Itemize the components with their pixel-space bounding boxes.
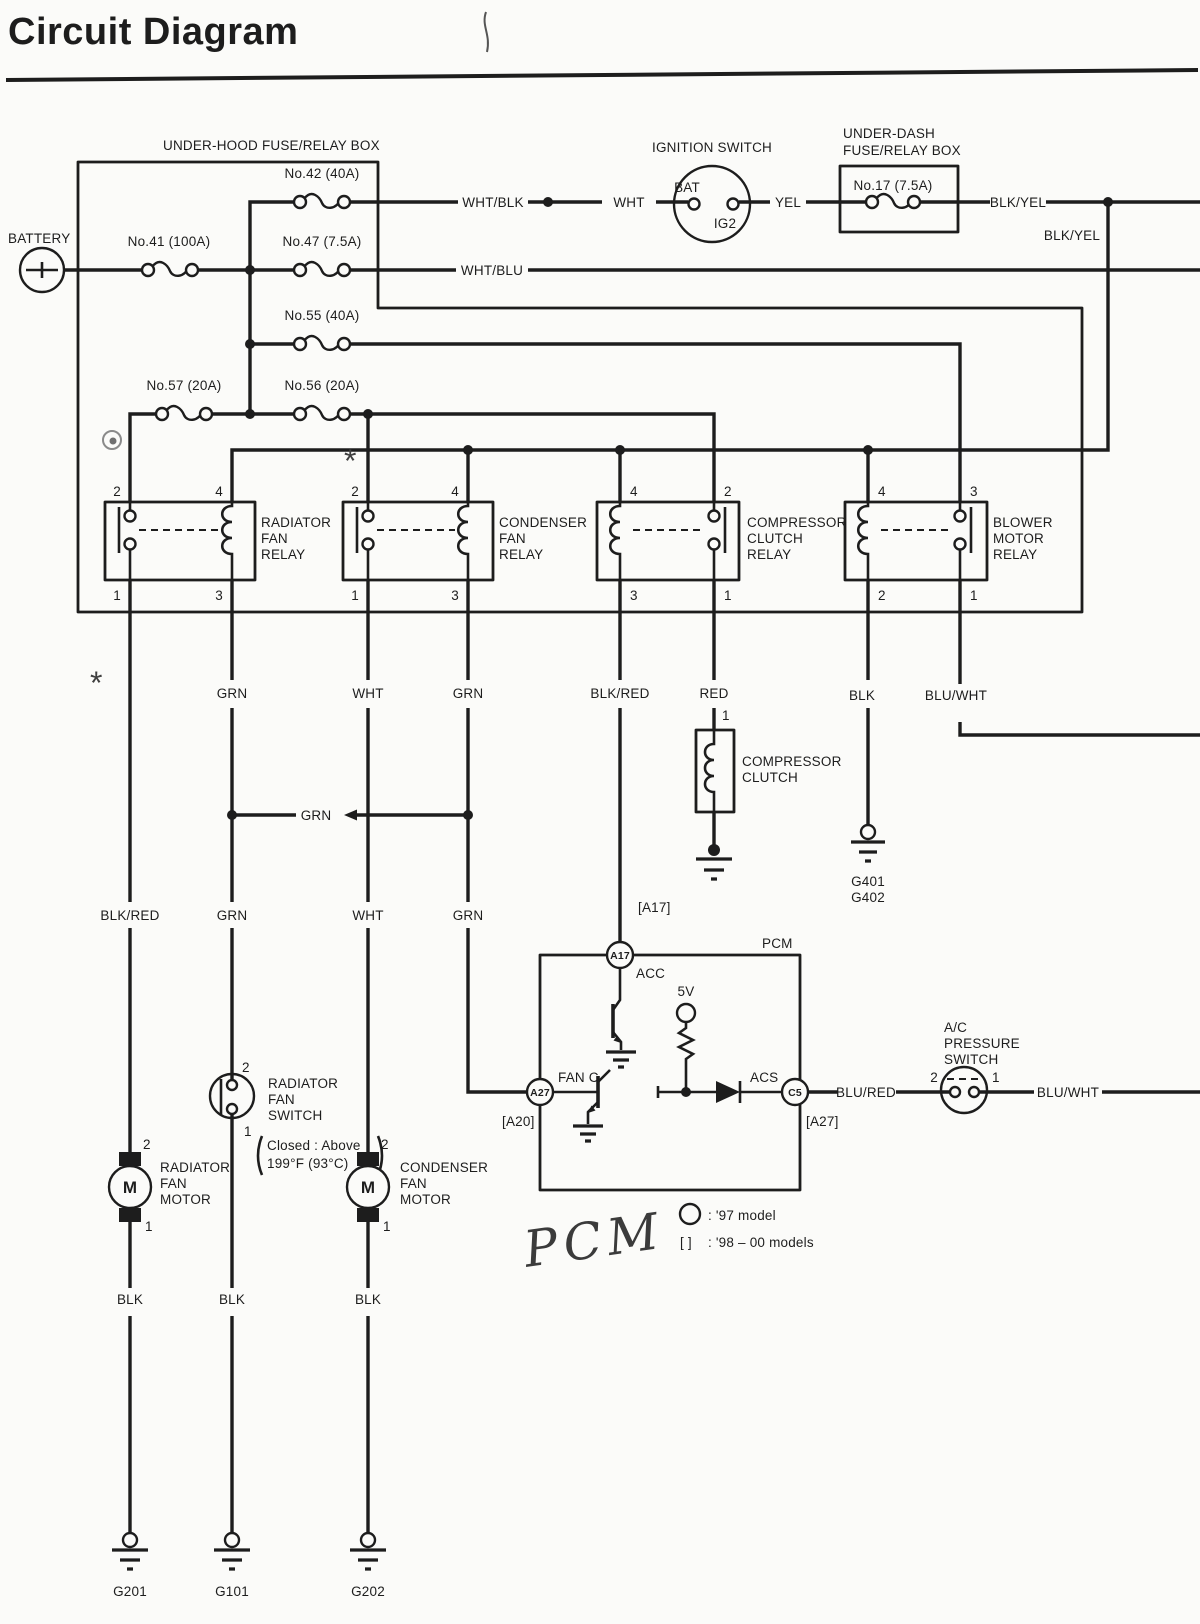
- note-paren-left: [258, 1136, 262, 1175]
- ground-terminal: [361, 1533, 375, 1547]
- relay-pin-label: 1: [351, 588, 359, 603]
- pcm-acc-label: ACC: [636, 966, 665, 981]
- wire-label-wht-blu: WHT/BLU: [461, 263, 523, 278]
- fuse-56-terminal: [294, 408, 306, 420]
- relay-pin-label: 4: [630, 484, 638, 499]
- pcm-module: PCM A17 [A17] ACC 5V A27 [A20] FAN C A: [502, 900, 839, 1279]
- motor-name: MOTOR: [160, 1192, 211, 1207]
- pcm-5v-label: 5V: [678, 984, 695, 999]
- motor-brush-bottom: [357, 1208, 379, 1222]
- compressor-clutch-name: CLUTCH: [742, 770, 798, 785]
- compressor-clutch: 1 COMPRESSOR CLUTCH: [696, 708, 842, 879]
- pcm-connector-c5-text: C5: [788, 1087, 802, 1099]
- relay-pin-label: 4: [215, 484, 223, 499]
- legend-97-note: : '97 model: [708, 1208, 776, 1223]
- ground-icon: [606, 1052, 636, 1067]
- ground-terminal: [861, 825, 875, 839]
- wire-label-blk-yel-drop: BLK/YEL: [1044, 228, 1100, 243]
- junction-no55: [245, 339, 255, 349]
- ground-terminal: [123, 1533, 137, 1547]
- fuse-42-label: No.42 (40A): [285, 166, 360, 181]
- blower-motor-relay: 4 3 2 1 BLOWER MOTOR RELAY: [845, 484, 1053, 603]
- relay-pin-label: 2: [113, 484, 121, 499]
- under-hood-fuse-relay-box: UNDER-HOOD FUSE/RELAY BOX: [78, 138, 1082, 612]
- ground-g202: G202: [350, 1533, 386, 1599]
- column-labels-row2: BLK/RED GRN WHT GRN: [100, 908, 483, 923]
- junction-busa: [245, 409, 255, 419]
- ground-icon: [214, 1550, 250, 1569]
- under-dash-fuse-relay-box: UNDER-DASH FUSE/RELAY BOX No.17 (7.5A): [840, 126, 961, 232]
- pcm-c5-bracket-label: [A27]: [806, 1114, 839, 1129]
- scan-artifact-blob-dot: [110, 438, 117, 445]
- ground-terminal: [225, 1533, 239, 1547]
- ground-icon: [573, 1126, 603, 1141]
- ignition-ig2-contact: [728, 199, 739, 210]
- fuse-42-element: [304, 194, 341, 208]
- relay-pin-label: 3: [970, 484, 978, 499]
- wire-label-blk: BLK: [219, 1292, 245, 1307]
- relay-switch-contact: [709, 539, 720, 550]
- motor-pin-bottom: 1: [383, 1219, 391, 1234]
- wire-bluwht-right: [960, 580, 1200, 735]
- ground-icon: [851, 842, 885, 861]
- radiator-fan-relay: 2 4 1 3 RADIATOR FAN RELAY: [105, 484, 331, 603]
- page-title: Circuit Diagram: [8, 11, 298, 53]
- fuse-47-element: [304, 262, 341, 276]
- relay-name: RADIATOR: [261, 515, 331, 530]
- fan-switch-pin-bottom: 1: [244, 1124, 252, 1139]
- fan-switch-note-2: 199°F (93°C): [267, 1156, 348, 1171]
- title-underline: [6, 70, 1198, 80]
- relay-name: CONDENSER: [499, 515, 587, 530]
- legend-98-note: : '98 – 00 models: [708, 1235, 814, 1250]
- radiator-fan-switch: 2 1 RADIATOR FAN SWITCH Closed : Above 1…: [210, 1060, 382, 1175]
- fan-switch-name: SWITCH: [268, 1108, 322, 1123]
- motor-name: RADIATOR: [160, 1160, 230, 1175]
- fuse-55-terminal: [294, 338, 306, 350]
- transistor-emitter: [588, 1102, 598, 1124]
- junction-grn-jumper: [227, 810, 237, 820]
- fuse-47-terminal: [294, 264, 306, 276]
- fuse-56-label: No.56 (20A): [285, 378, 360, 393]
- relay-name: FAN: [261, 531, 288, 546]
- top-wire-labels: WHT/BLK WHT YEL BLK/YEL BLK/YEL WHT/BLU: [461, 195, 1100, 278]
- wire-label-grn: GRN: [217, 908, 248, 923]
- motor-m-letter: M: [361, 1178, 375, 1197]
- wire-no57-to-radiator: [130, 414, 156, 502]
- junction-no41: [245, 265, 255, 275]
- relay-name: MOTOR: [993, 531, 1044, 546]
- pcm-acs-label: ACS: [750, 1070, 778, 1085]
- arrow-left-icon: [344, 810, 357, 821]
- motor-pin-top: 2: [381, 1137, 389, 1152]
- splice-dot: [543, 197, 553, 207]
- ground-icon: [696, 859, 732, 879]
- fuse-41-element: [152, 262, 189, 276]
- ground-label-g401: G401: [851, 874, 885, 889]
- pressure-switch-name: PRESSURE: [944, 1036, 1020, 1051]
- relay-name: RELAY: [499, 547, 543, 562]
- relay-name: RELAY: [261, 547, 305, 562]
- pressure-switch-contact: [950, 1087, 960, 1097]
- junction-grn-jumper: [463, 810, 473, 820]
- scan-artifact-squiggle: [485, 12, 488, 52]
- fuse-42-terminal: [338, 196, 350, 208]
- fuse-41-label: No.41 (100A): [128, 234, 211, 249]
- ac-pressure-switch-icon: [941, 1067, 987, 1113]
- wire-label-wht: WHT: [613, 195, 644, 210]
- radiator-fan-motor: 2 M 1 RADIATOR FAN MOTOR: [109, 1137, 230, 1234]
- pcm-connector-a27-text: A27: [530, 1087, 550, 1099]
- fuse-42-terminal: [294, 196, 306, 208]
- relay-name: FAN: [499, 531, 526, 546]
- ignition-switch: IGNITION SWITCH BAT IG2: [652, 140, 772, 242]
- ignition-bat-contact: [689, 199, 700, 210]
- pcm-a20-bracket-label: [A20]: [502, 1114, 535, 1129]
- fuse-57-terminal: [200, 408, 212, 420]
- fuse-57-label: No.57 (20A): [147, 378, 222, 393]
- under-hood-box-label: UNDER-HOOD FUSE/RELAY BOX: [163, 138, 380, 153]
- pcm-fanc-label: FAN C: [558, 1070, 599, 1085]
- wire-label-wht: WHT: [352, 908, 383, 923]
- relay-pin-label: 2: [878, 588, 886, 603]
- pcm-handwritten-note: PCM: [519, 1202, 668, 1279]
- relay-pin-label: 4: [451, 484, 459, 499]
- relay-name: CLUTCH: [747, 531, 803, 546]
- ground-icon: [112, 1550, 148, 1569]
- ground-icon: [350, 1550, 386, 1569]
- relay-pin-label: 2: [351, 484, 359, 499]
- wire-label-blk: BLK: [355, 1292, 381, 1307]
- relay-switch-contact: [955, 539, 966, 550]
- fan-switch-contact: [227, 1080, 237, 1090]
- ignition-bat-terminal-label: BAT: [674, 180, 700, 195]
- wire-label-grn-jumper: GRN: [301, 808, 332, 823]
- relay-switch-contact: [125, 511, 136, 522]
- relay-coil: [458, 502, 468, 580]
- output-wires: GRN: [130, 580, 1200, 1533]
- motor-brush-top: [119, 1152, 141, 1166]
- pressure-switch-contact: [969, 1087, 979, 1097]
- ignition-switch-label: IGNITION SWITCH: [652, 140, 772, 155]
- relay-switch-contact: [363, 511, 374, 522]
- wire-label-blk: BLK: [849, 688, 875, 703]
- motor-pin-bottom: 1: [145, 1219, 153, 1234]
- ground-label-g402: G402: [851, 890, 885, 905]
- relay-switch-contact: [955, 511, 966, 522]
- pressure-switch-pin-2: 2: [930, 1070, 938, 1085]
- relay-pin-label: 1: [113, 588, 121, 603]
- relay-coil: [610, 502, 620, 580]
- header: Circuit Diagram: [6, 11, 1198, 80]
- pcm-connector-a17-text: A17: [610, 950, 630, 962]
- diode-icon: [716, 1081, 740, 1103]
- pressure-switch-pin-1: 1: [992, 1070, 1000, 1085]
- relay-pin-label: 2: [724, 484, 732, 499]
- ground-label-g101: G101: [215, 1584, 249, 1599]
- fuse-47-terminal: [338, 264, 350, 276]
- relay-coil: [222, 502, 232, 580]
- wire-label-blk-red: BLK/RED: [590, 686, 649, 701]
- compressor-clutch-pin: 1: [722, 708, 730, 723]
- under-hood-box-outline: [78, 162, 1082, 612]
- relay-pin-label: 1: [724, 588, 732, 603]
- fuse-56-element: [304, 406, 341, 420]
- fan-switch-note-1: Closed : Above: [267, 1138, 361, 1153]
- wire-label-blu-red: BLU/RED: [836, 1085, 896, 1100]
- fuse-41-terminal: [142, 264, 154, 276]
- fuse-47-label: No.47 (7.5A): [283, 234, 362, 249]
- wire-label-blu-wht: BLU/WHT: [925, 688, 987, 703]
- relay-name: RELAY: [993, 547, 1037, 562]
- under-dash-box-outline: [840, 166, 958, 232]
- pcm-a17-bracket-label: [A17]: [638, 900, 671, 915]
- ground-g101: G101: [214, 1533, 250, 1599]
- compressor-clutch-coil: [705, 730, 714, 812]
- wire-no56-to-compressor: [350, 414, 714, 502]
- scan-artifact-asterisk: *: [344, 443, 357, 479]
- ground-label-g202: G202: [351, 1584, 385, 1599]
- fuse-55-terminal: [338, 338, 350, 350]
- fuse-17-terminal: [908, 196, 920, 208]
- motor-name: FAN: [400, 1176, 427, 1191]
- wire-label-blk: BLK: [117, 1292, 143, 1307]
- resistor-icon: [679, 1022, 693, 1092]
- wire-grn-to-pcm: [468, 580, 527, 1092]
- relay-name: COMPRESSOR: [747, 515, 847, 530]
- fan-switch-name: FAN: [268, 1092, 295, 1107]
- motor-pin-top: 2: [143, 1137, 151, 1152]
- under-dash-box-label-1: UNDER-DASH: [843, 126, 935, 141]
- ac-pressure-switch-line: BLU/RED BLU/WHT 2 1 A/C PRESSURE SWITCH: [808, 1020, 1200, 1113]
- fan-switch-name: RADIATOR: [268, 1076, 338, 1091]
- fan-switch-contact: [227, 1104, 237, 1114]
- motor-brush-bottom: [119, 1208, 141, 1222]
- relay-coil: [858, 502, 868, 580]
- legend-bracket-icon: [ ]: [680, 1235, 692, 1250]
- wire-label-blu-wht: BLU/WHT: [1037, 1085, 1099, 1100]
- motor-brush-top: [357, 1152, 379, 1166]
- ground-g401-g402: G401 G402: [851, 825, 885, 905]
- relay-switch-contact: [125, 539, 136, 550]
- relay-name: BLOWER: [993, 515, 1053, 530]
- ground-g201: G201: [112, 1533, 148, 1599]
- fuse-55-label: No.55 (40A): [285, 308, 360, 323]
- pcm-label: PCM: [762, 936, 793, 951]
- pcm-5v-supply-icon: [677, 1004, 695, 1022]
- fuse-56-terminal: [338, 408, 350, 420]
- battery: BATTERY: [8, 231, 70, 292]
- power-distribution-wires: [64, 197, 1200, 502]
- compressor-clutch-name: COMPRESSOR: [742, 754, 842, 769]
- pressure-switch-name: SWITCH: [944, 1052, 998, 1067]
- relay-pin-label: 3: [215, 588, 223, 603]
- wire-label-wht-blk: WHT/BLK: [462, 195, 523, 210]
- fuse-55-element: [304, 336, 341, 350]
- fuse-17-label: No.17 (7.5A): [854, 178, 933, 193]
- ground-dot: [708, 844, 720, 856]
- wire-label-red: RED: [699, 686, 728, 701]
- motor-name: FAN: [160, 1176, 187, 1191]
- condenser-fan-relay: 2 4 1 3 CONDENSER FAN RELAY: [343, 484, 587, 603]
- fuse-57-element: [166, 406, 203, 420]
- transistor-collector: [613, 968, 620, 1010]
- bottom-blk-labels: BLK BLK BLK: [117, 1292, 381, 1307]
- motor-m-letter: M: [123, 1178, 137, 1197]
- wire-label-grn: GRN: [217, 686, 248, 701]
- relay-name: RELAY: [747, 547, 791, 562]
- fan-switch-pin-top: 2: [242, 1060, 250, 1075]
- relay-pin-label: 3: [630, 588, 638, 603]
- wire-label-wht: WHT: [352, 686, 383, 701]
- column-labels-row1: GRN WHT GRN BLK/RED RED BLK BLU/WHT: [217, 686, 987, 703]
- ignition-ig2-terminal-label: IG2: [714, 216, 736, 231]
- under-dash-box-label-2: FUSE/RELAY BOX: [843, 143, 961, 158]
- relay-pin-label: 4: [878, 484, 886, 499]
- circuit-diagram-canvas: Circuit Diagram UNDER-HOOD FUSE/RELAY BO…: [0, 0, 1200, 1624]
- battery-label: BATTERY: [8, 231, 70, 246]
- junction-5v-diode: [681, 1087, 691, 1097]
- fuse-41-terminal: [186, 264, 198, 276]
- fuse-57-terminal: [156, 408, 168, 420]
- relay-switch-contact: [709, 511, 720, 522]
- motor-name: CONDENSER: [400, 1160, 488, 1175]
- wire-label-grn: GRN: [453, 686, 484, 701]
- wire-label-blk-red: BLK/RED: [100, 908, 159, 923]
- motor-name: MOTOR: [400, 1192, 451, 1207]
- compressor-clutch-relay: 4 2 3 1 COMPRESSOR CLUTCH RELAY: [597, 484, 847, 603]
- ground-label-g201: G201: [113, 1584, 147, 1599]
- wire-label-grn: GRN: [453, 908, 484, 923]
- wire-label-yel: YEL: [775, 195, 801, 210]
- scan-artifact-asterisk: *: [90, 665, 103, 701]
- fuse-17-terminal: [866, 196, 878, 208]
- wire-label-blk-yel: BLK/YEL: [990, 195, 1046, 210]
- relay-pin-label: 3: [451, 588, 459, 603]
- legend-circle-icon: [680, 1204, 700, 1224]
- fuse-symbols: No.42 (40A) No.41 (100A) No.47 (7.5A) No…: [128, 166, 362, 420]
- scanned-circuit-diagram-page: Circuit Diagram UNDER-HOOD FUSE/RELAY BO…: [0, 0, 1200, 1624]
- relay-pin-label: 1: [970, 588, 978, 603]
- relay-switch-contact: [363, 539, 374, 550]
- pressure-switch-name: A/C: [944, 1020, 967, 1035]
- wire-blkyel-coil-bus: [232, 202, 1108, 502]
